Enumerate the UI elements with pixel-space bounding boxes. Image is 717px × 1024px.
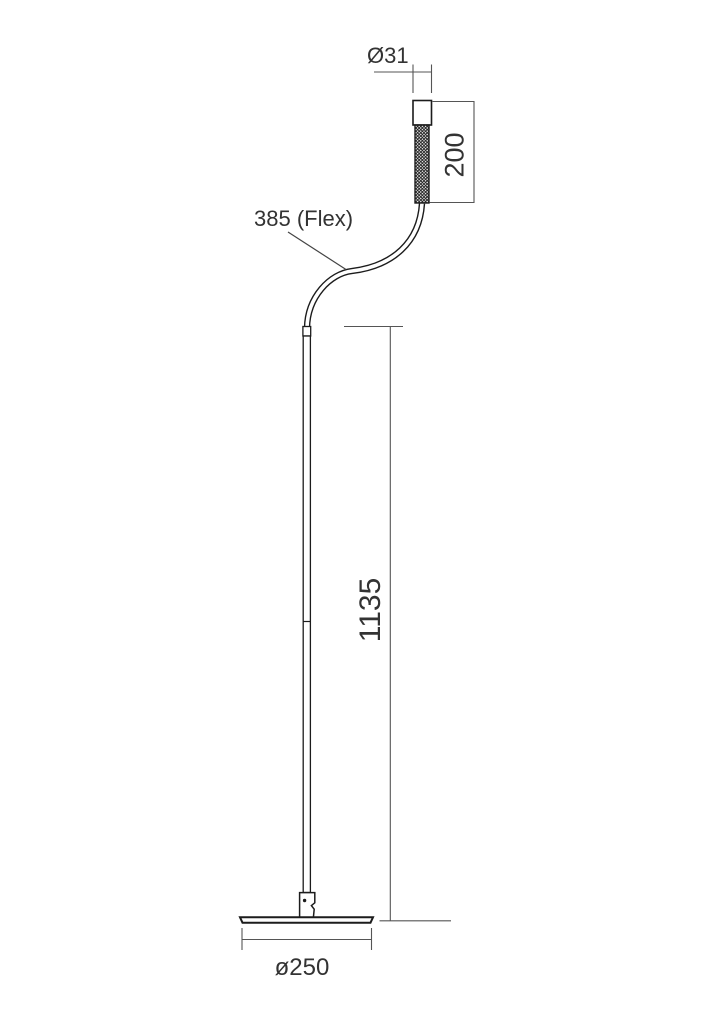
dim-head-diameter: Ø31 bbox=[367, 43, 432, 93]
lamp-head-cap bbox=[413, 101, 432, 126]
dim-base-diameter: ø250 bbox=[242, 928, 372, 981]
dim-flex-arm-leader bbox=[288, 232, 346, 270]
dim-head-length: 200 bbox=[430, 102, 475, 203]
lamp-dimension-drawing: Ø31 200 385 (Flex) 1135 ø250 bbox=[0, 0, 717, 1024]
dim-base-diameter-label: ø250 bbox=[275, 954, 330, 981]
base-plate bbox=[240, 917, 373, 922]
lamp-head-tube bbox=[415, 125, 429, 203]
dim-pole-height-label: 1135 bbox=[354, 578, 387, 643]
dim-flex-arm: 385 (Flex) bbox=[254, 206, 353, 270]
arm-pole-collar bbox=[303, 327, 311, 337]
dim-pole-height: 1135 bbox=[344, 327, 451, 921]
pole bbox=[303, 336, 310, 893]
dim-flex-arm-label: 385 (Flex) bbox=[254, 206, 353, 231]
pole-base-connector bbox=[300, 893, 315, 918]
dim-head-diameter-label: Ø31 bbox=[367, 43, 409, 68]
drawing-canvas: Ø31 200 385 (Flex) 1135 ø250 bbox=[0, 0, 717, 1024]
connector-screw bbox=[303, 899, 306, 902]
dim-head-length-label: 200 bbox=[440, 132, 470, 177]
